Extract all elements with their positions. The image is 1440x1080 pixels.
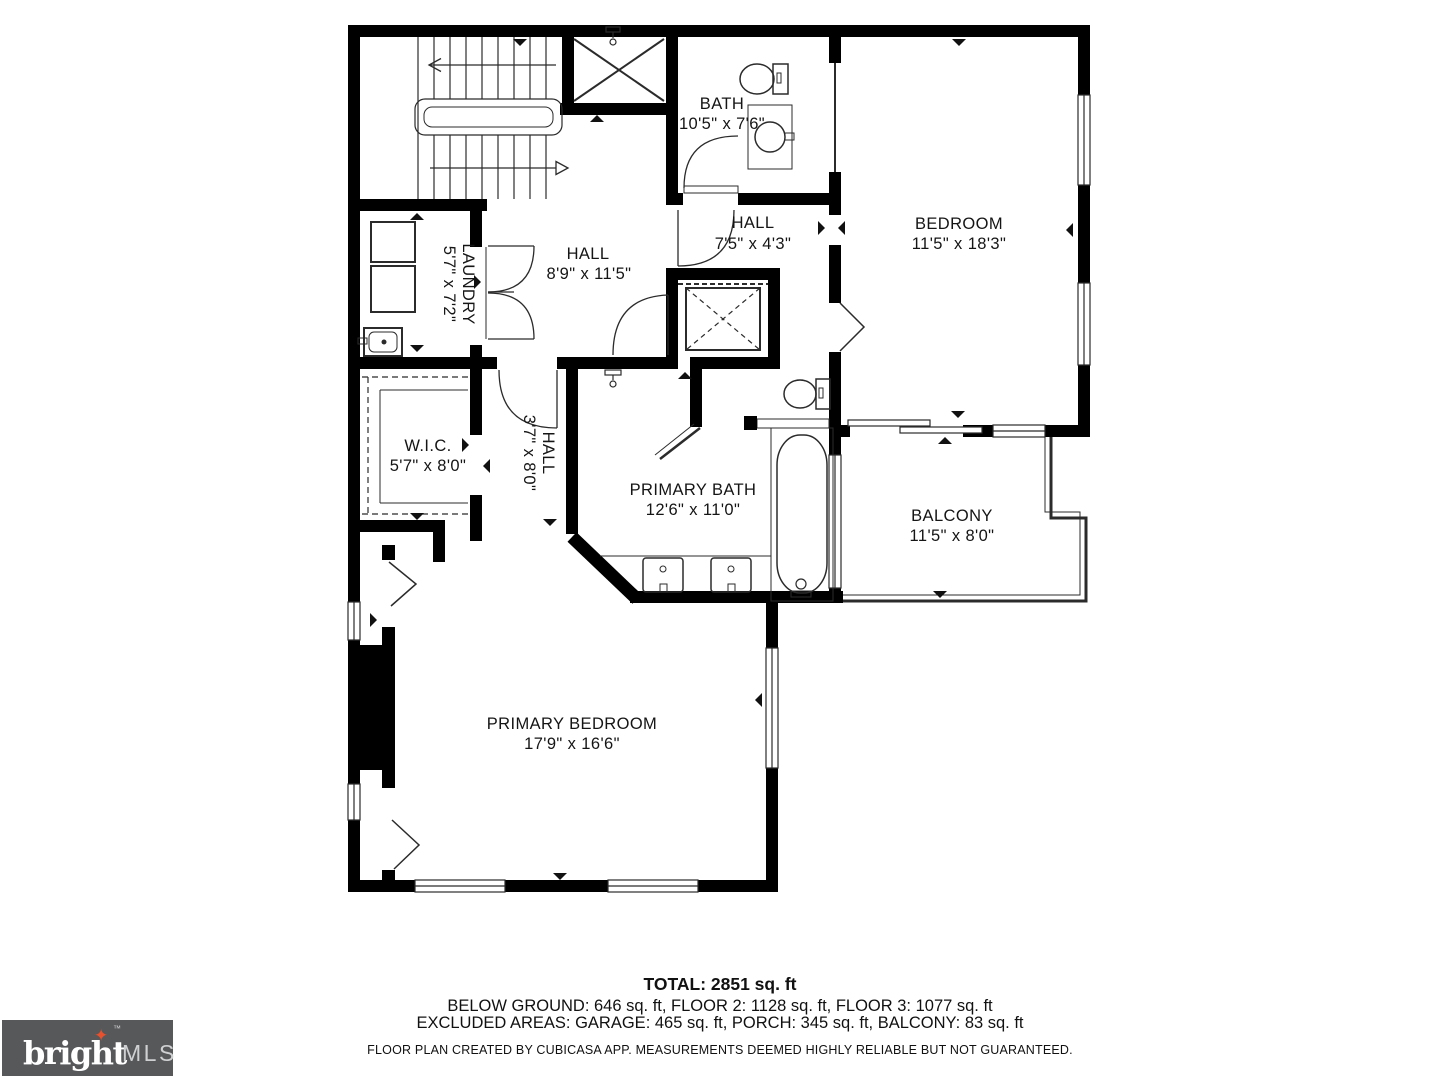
svg-text:3'7" x 8'0": 3'7" x 8'0" [520, 415, 538, 492]
sink-icon [711, 558, 751, 592]
room-label-hall-upper: HALL 7'5" x 4'3" [715, 214, 792, 253]
svg-text:HALL: HALL [539, 432, 557, 475]
room-label-laundry: LAUNDRY 5'7" x 7'2" [440, 243, 477, 324]
window [1078, 283, 1090, 365]
svg-text:W.I.C.: W.I.C. [404, 437, 451, 455]
room-label-bedroom: BEDROOM 11'5" x 18'3" [912, 215, 1006, 253]
toilet-icon [740, 64, 788, 94]
svg-text:LAUNDRY: LAUNDRY [459, 243, 477, 324]
door-swing-bath [684, 136, 738, 193]
window [993, 425, 1045, 437]
svg-text:7'5" x 4'3": 7'5" x 4'3" [715, 235, 792, 253]
window [766, 648, 778, 768]
total-area-text: TOTAL: 2851 sq. ft [0, 974, 1440, 995]
svg-text:11'5" x 8'0": 11'5" x 8'0" [910, 527, 995, 545]
window [348, 602, 360, 640]
svg-text:HALL: HALL [567, 245, 610, 263]
excluded-areas-text: EXCLUDED AREAS: GARAGE: 465 sq. ft, PORC… [0, 1014, 1440, 1033]
room-label-balcony: BALCONY 11'5" x 8'0" [910, 507, 995, 545]
stair-direction-arrow-up [429, 59, 556, 72]
washer-icon [371, 222, 415, 262]
staircase [415, 37, 568, 199]
svg-text:8'9" x 11'5": 8'9" x 11'5" [547, 265, 632, 283]
window [829, 455, 841, 588]
window [348, 784, 360, 820]
laundry-fixtures [358, 222, 415, 356]
direction-ticks [370, 39, 1073, 880]
svg-text:12'6" x 11'0": 12'6" x 11'0" [646, 501, 740, 519]
svg-text:10'5" x 7'6": 10'5" x 7'6" [679, 115, 765, 133]
dryer-icon [371, 266, 415, 312]
room-label-wic: W.I.C. 5'7" x 8'0" [390, 437, 467, 475]
svg-text:BATH: BATH [700, 95, 744, 113]
svg-text:11'5" x 18'3": 11'5" x 18'3" [912, 235, 1006, 253]
window [1078, 95, 1090, 185]
bright-mls-logo: bright ✦ ™ MLS [2, 1020, 173, 1076]
sink-icon [643, 558, 683, 592]
shower-glass-partition [655, 424, 700, 459]
shower-head-icon [605, 370, 621, 387]
svg-text:BEDROOM: BEDROOM [915, 215, 1003, 233]
trademark-symbol: ™ [113, 1025, 121, 1033]
svg-text:PRIMARY BATH: PRIMARY BATH [630, 481, 757, 499]
closet-dashed-box [678, 284, 768, 350]
toilet-icon [784, 379, 830, 409]
door-swing-laundry-double [486, 246, 534, 339]
window [608, 880, 698, 892]
floor-plan-page: BATH 10'5" x 7'6" HALL 7'5" x 4'3" BEDRO… [0, 0, 1440, 1080]
logo-brand-text: bright [23, 1037, 126, 1069]
bathtub-icon [771, 428, 833, 601]
sliding-door [848, 420, 982, 433]
stair-landing-rail [415, 99, 562, 135]
room-label-bath: BATH 10'5" x 7'6" [679, 95, 765, 133]
shower-enclosure [574, 27, 664, 101]
door-chevron-primary-bedroom-bay2 [392, 820, 419, 869]
svg-text:17'9" x 16'6": 17'9" x 16'6" [524, 735, 620, 753]
logo-suffix-text: MLS [122, 1042, 177, 1065]
floor-plan-drawing: BATH 10'5" x 7'6" HALL 7'5" x 4'3" BEDRO… [0, 0, 1440, 1080]
svg-text:5'7" x 8'0": 5'7" x 8'0" [390, 457, 467, 475]
disclaimer-text: FLOOR PLAN CREATED BY CUBICASA APP. MEAS… [0, 1043, 1440, 1057]
utility-sink-icon [358, 328, 402, 356]
svg-text:PRIMARY BEDROOM: PRIMARY BEDROOM [487, 715, 657, 733]
window [415, 880, 505, 892]
svg-text:HALL: HALL [732, 214, 775, 232]
sparkle-star-icon: ✦ [94, 1027, 108, 1044]
svg-text:BALCONY: BALCONY [911, 507, 993, 525]
svg-text:5'7" x 7'2": 5'7" x 7'2" [440, 246, 458, 323]
stair-direction-arrow-down [430, 162, 568, 175]
room-label-primary-bedroom: PRIMARY BEDROOM 17'9" x 16'6" [487, 715, 657, 753]
room-label-hall-lower: HALL 3'7" x 8'0" [520, 415, 557, 492]
room-label-hall-main: HALL 8'9" x 11'5" [547, 245, 632, 283]
door-swing-hall-main [613, 295, 668, 355]
room-label-primary-bath: PRIMARY BATH 12'6" x 11'0" [630, 481, 757, 519]
door-chevron-primary-bedroom-bay1 [389, 562, 416, 606]
door-chevron-bedroom [840, 303, 864, 351]
